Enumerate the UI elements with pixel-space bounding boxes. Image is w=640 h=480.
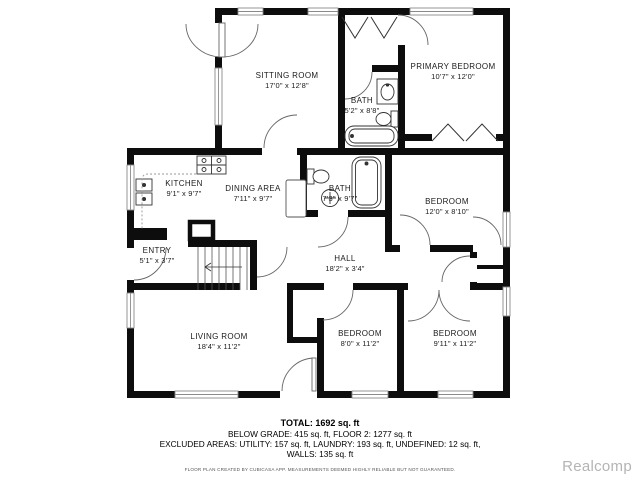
window (503, 212, 510, 247)
primary-bedroom-door (398, 15, 428, 45)
walls-area: WALLS: 135 sq. ft (0, 449, 640, 459)
sitting-room-door (264, 115, 297, 148)
kitchen-stove-icon (197, 156, 226, 174)
upper-bath-door (345, 72, 372, 99)
room-label-bath-upper: BATH 5'2" x 8'8" (345, 96, 380, 115)
floor-plan-image (0, 0, 640, 480)
window (175, 391, 238, 398)
chimney (190, 222, 213, 239)
room-label-kitchen: KITCHEN 9'1" x 9'7" (165, 179, 203, 198)
dining-table (286, 180, 306, 217)
window (238, 8, 263, 15)
front-door-leaf (312, 358, 316, 391)
window (410, 8, 473, 15)
area-summary: TOTAL: 1692 sq. ft BELOW GRADE: 415 sq. … (0, 418, 640, 459)
kitchen-sink-icon (136, 179, 152, 205)
excluded-areas: EXCLUDED AREAS: UTILITY: 157 sq. ft, LAU… (0, 439, 640, 449)
room-label-bedroom-back: BEDROOM 9'11" x 11'2" (433, 329, 477, 348)
room-label-dining-area: DINING AREA 7'11" x 9'7" (225, 184, 280, 203)
main-bath-toilet-icon (307, 169, 329, 184)
upper-bath-vanity-icon (377, 79, 398, 104)
bedroom-back-double-door-left (408, 290, 439, 321)
room-label-sitting-room: SITTING ROOM 17'0" x 12'8" (256, 71, 319, 90)
upper-bathtub-icon (345, 126, 398, 146)
front-door (282, 358, 315, 391)
room-label-primary-bedroom: PRIMARY BEDROOM 10'7" x 12'0" (411, 62, 496, 81)
disclaimer-text: FLOOR PLAN CREATED BY CUBICASA APP. MEAS… (0, 467, 640, 472)
total-area: TOTAL: 1692 sq. ft (0, 418, 640, 429)
floor-plan-page: SITTING ROOM 17'0" x 12'8" BATH 5'2" x 8… (0, 0, 640, 480)
room-label-hall: HALL 18'2" x 3'4" (325, 254, 364, 273)
grade-areas: BELOW GRADE: 415 sq. ft, FLOOR 2: 1277 s… (0, 429, 640, 439)
bedroom-right-door (400, 215, 430, 245)
window (503, 287, 510, 316)
stairs-direction-arrow (205, 263, 242, 271)
bedroom-small-door (323, 290, 353, 320)
main-bath-door (318, 217, 348, 247)
room-label-bath-main: BATH 7'3" x 9'7" (323, 184, 358, 203)
window (215, 68, 222, 125)
room-label-entry: ENTRY 5'1" x 3'7" (140, 246, 175, 265)
realcomp-watermark: Realcomp (562, 458, 632, 475)
bedroom-back-double-door-right (439, 290, 470, 321)
room-label-bedroom-small: BEDROOM 8'0" x 11'2" (338, 329, 382, 348)
window (127, 165, 134, 210)
window (127, 293, 134, 328)
door-leaf (219, 23, 225, 57)
window (352, 391, 388, 398)
hall-closet-door (442, 256, 470, 282)
room-label-living-room: LIVING ROOM 18'4" x 11'2" (190, 332, 247, 351)
window (438, 391, 473, 398)
bedroom-right-closet-door (473, 217, 501, 245)
dining-hall-door (257, 247, 287, 277)
room-label-bedroom-right: BEDROOM 12'0" x 8'10" (425, 197, 469, 216)
window (308, 8, 338, 15)
